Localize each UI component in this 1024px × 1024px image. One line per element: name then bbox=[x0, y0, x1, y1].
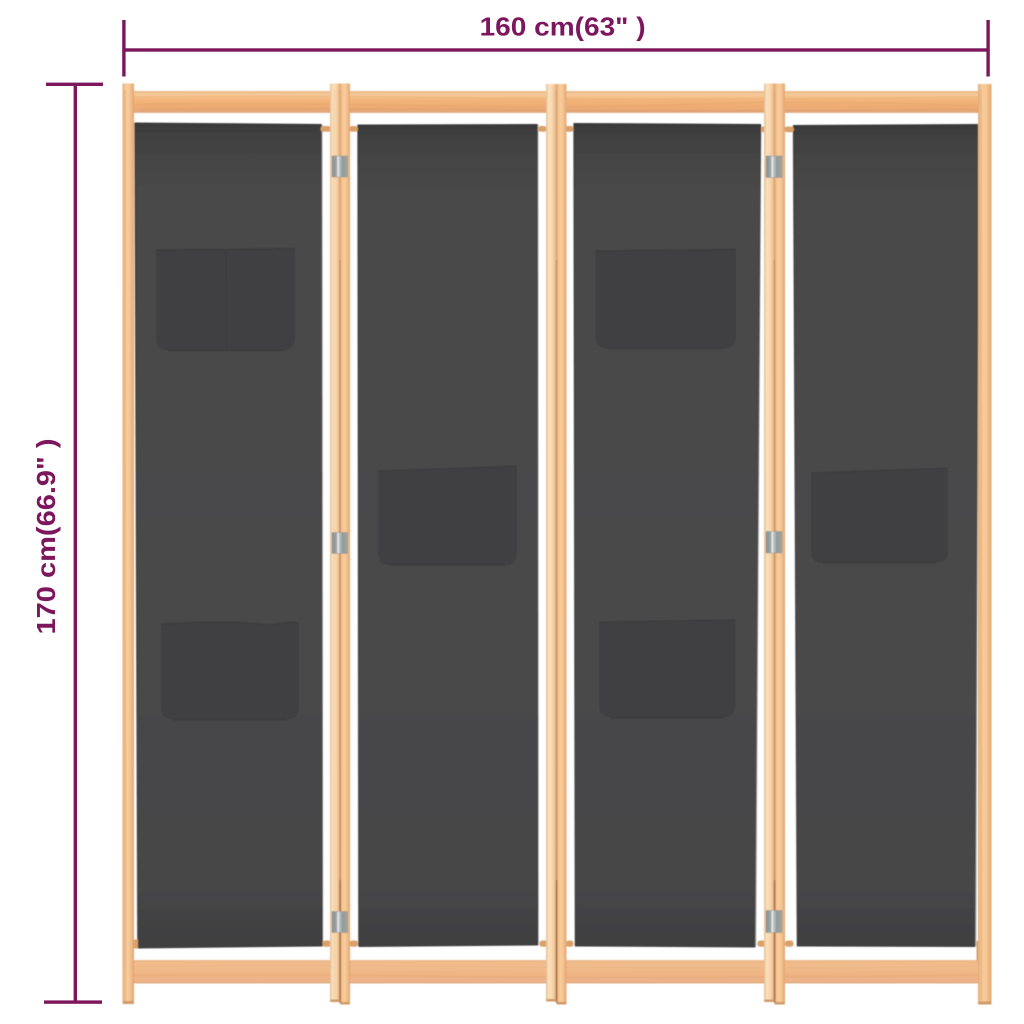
svg-text:170 cm(66.9" ): 170 cm(66.9" ) bbox=[31, 439, 61, 635]
svg-text:160 cm(63" ): 160 cm(63" ) bbox=[480, 11, 646, 41]
